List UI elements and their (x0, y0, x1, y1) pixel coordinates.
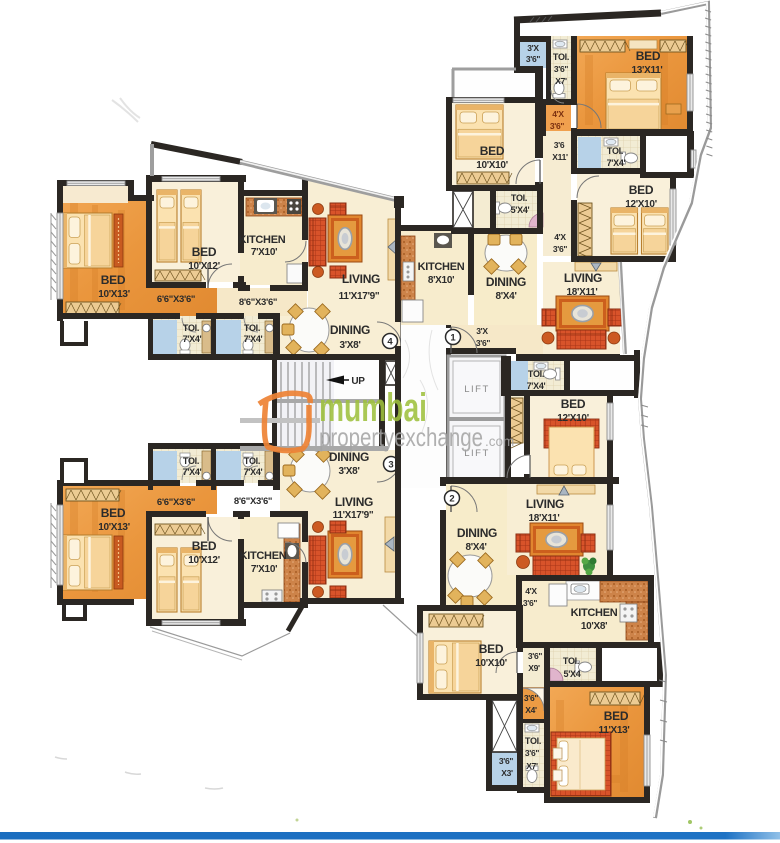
svg-text:BED: BED (480, 144, 505, 158)
svg-text:KITCHEN: KITCHEN (571, 607, 618, 619)
svg-text:11'X17'9": 11'X17'9" (339, 291, 380, 302)
svg-text:X9': X9' (528, 663, 540, 673)
svg-text:3'6": 3'6" (523, 598, 538, 608)
svg-text:TOI.: TOI. (563, 656, 579, 666)
svg-text:KITCHEN: KITCHEN (240, 550, 287, 562)
svg-text:3: 3 (388, 459, 393, 470)
svg-text:7'X4': 7'X4' (527, 381, 546, 391)
svg-text:DINING: DINING (486, 275, 526, 289)
svg-text:DINING: DINING (330, 323, 370, 337)
svg-text:10'X13': 10'X13' (98, 522, 130, 533)
svg-text:BED: BED (101, 506, 126, 520)
svg-text:8'6"X3'6": 8'6"X3'6" (234, 496, 272, 507)
svg-text:BED: BED (604, 709, 629, 723)
svg-text:BED: BED (561, 397, 586, 411)
svg-text:4'X: 4'X (554, 232, 566, 242)
svg-text:3'6": 3'6" (524, 693, 539, 703)
svg-text:propertyexchange: propertyexchange (319, 422, 483, 452)
svg-text:KITCHEN: KITCHEN (418, 261, 465, 273)
svg-text:10'X10': 10'X10' (476, 160, 508, 171)
svg-text:X7': X7' (526, 761, 538, 771)
svg-text:TOI.: TOI. (525, 736, 541, 746)
svg-text:LIFT: LIFT (464, 384, 490, 395)
svg-text:7'X10': 7'X10' (251, 247, 277, 258)
svg-text:TOI.: TOI. (183, 456, 199, 466)
svg-text:TOI.: TOI. (244, 323, 260, 333)
svg-text:3'X: 3'X (527, 43, 539, 53)
svg-text:8'X4': 8'X4' (495, 291, 516, 302)
svg-text:3'X8': 3'X8' (338, 466, 359, 477)
svg-text:DINING: DINING (329, 450, 369, 464)
svg-text:12'X10': 12'X10' (625, 199, 657, 210)
svg-text:BED: BED (479, 642, 504, 656)
svg-text:DINING: DINING (457, 526, 497, 540)
svg-text:18'X11': 18'X11' (566, 287, 597, 298)
svg-text:LIVING: LIVING (526, 497, 564, 511)
svg-text:BED: BED (636, 49, 661, 63)
svg-text:11'X17'9": 11'X17'9" (333, 510, 374, 521)
svg-text:18'X11': 18'X11' (528, 513, 559, 524)
svg-text:7'X4': 7'X4' (183, 334, 202, 344)
svg-text:TOI.: TOI. (511, 193, 527, 203)
svg-text:BED: BED (101, 273, 126, 287)
svg-text:TOI.: TOI. (528, 369, 544, 379)
svg-text:X11': X11' (552, 152, 568, 162)
svg-text:10'X13': 10'X13' (98, 289, 130, 300)
svg-text:7'X4': 7'X4' (244, 467, 263, 477)
svg-text:10'X12': 10'X12' (188, 555, 220, 566)
svg-text:4'X: 4'X (552, 109, 564, 119)
svg-text:TOI.: TOI. (607, 146, 623, 156)
svg-text:10'X10': 10'X10' (475, 658, 507, 669)
svg-text:BED: BED (192, 539, 217, 553)
svg-text:TOI.: TOI. (183, 323, 199, 333)
svg-text:TOI.: TOI. (553, 52, 569, 62)
svg-text:3'6": 3'6" (528, 651, 543, 661)
svg-text:BED: BED (192, 245, 217, 259)
svg-text:8'X4': 8'X4' (465, 542, 486, 553)
svg-text:5'X4': 5'X4' (511, 205, 530, 215)
svg-text:7'X4': 7'X4' (183, 467, 202, 477)
svg-text:3'6": 3'6" (554, 64, 569, 74)
svg-text:10'X8': 10'X8' (581, 621, 607, 632)
svg-text:11'X13': 11'X13' (598, 725, 629, 736)
svg-text:7'X4': 7'X4' (607, 158, 626, 168)
svg-text:3'6": 3'6" (526, 54, 541, 64)
svg-text:LIVING: LIVING (335, 495, 373, 509)
svg-text:7'X4': 7'X4' (244, 334, 263, 344)
svg-text:3'X8': 3'X8' (339, 340, 360, 351)
svg-text:8'6"X3'6": 8'6"X3'6" (239, 297, 277, 308)
svg-text:KITCHEN: KITCHEN (239, 234, 286, 246)
svg-text:.com: .com (485, 434, 514, 449)
svg-text:3'6": 3'6" (499, 756, 514, 766)
svg-text:3'X: 3'X (476, 326, 488, 336)
svg-text:6'6"X3'6": 6'6"X3'6" (157, 294, 195, 305)
svg-text:LIVING: LIVING (564, 271, 602, 285)
svg-text:4: 4 (387, 336, 393, 347)
svg-text:3'6": 3'6" (476, 338, 491, 348)
svg-text:3'6": 3'6" (550, 121, 565, 131)
svg-text:2: 2 (449, 493, 454, 504)
svg-text:TOI.: TOI. (244, 456, 260, 466)
svg-text:1: 1 (450, 332, 456, 343)
svg-text:10'X12': 10'X12' (188, 261, 220, 272)
svg-text:5'X4: 5'X4 (564, 669, 581, 679)
svg-text:BED: BED (629, 183, 654, 197)
svg-text:LIVING: LIVING (342, 272, 380, 286)
svg-text:3'6": 3'6" (525, 748, 540, 758)
svg-text:X4': X4' (525, 705, 537, 715)
svg-text:X3': X3' (501, 768, 513, 778)
svg-text:7'X10': 7'X10' (251, 564, 277, 575)
svg-text:4'X: 4'X (525, 586, 537, 596)
svg-text:8'X10': 8'X10' (428, 275, 454, 286)
svg-text:6'6"X3'6": 6'6"X3'6" (157, 497, 195, 508)
svg-text:12'X10': 12'X10' (557, 413, 589, 424)
svg-text:3'6": 3'6" (553, 244, 568, 254)
svg-text:X7': X7' (555, 76, 567, 86)
svg-text:13'X11': 13'X11' (631, 65, 662, 76)
svg-text:3'6: 3'6 (554, 140, 565, 150)
